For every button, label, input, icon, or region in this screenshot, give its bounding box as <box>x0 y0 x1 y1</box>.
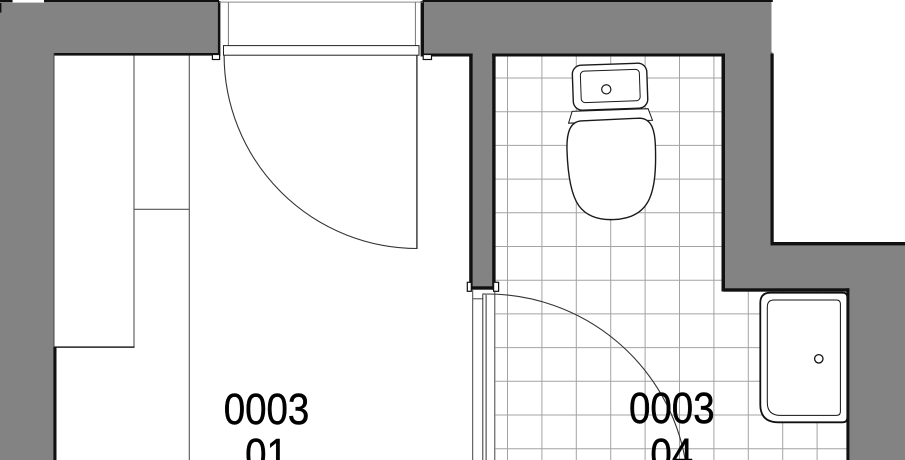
svg-text:01: 01 <box>245 430 288 460</box>
svg-text:0003: 0003 <box>629 384 715 433</box>
svg-text:04: 04 <box>650 430 693 460</box>
svg-text:0003: 0003 <box>224 385 310 434</box>
